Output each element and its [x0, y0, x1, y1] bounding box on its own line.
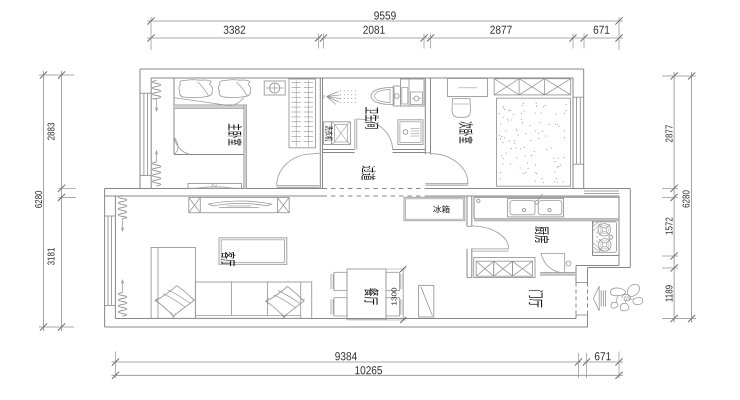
svg-text:10265: 10265 — [354, 365, 382, 378]
svg-text:3181: 3181 — [45, 248, 56, 266]
svg-text:门厅: 门厅 — [527, 289, 545, 308]
svg-text:厨房: 厨房 — [533, 226, 551, 243]
svg-text:9384: 9384 — [335, 351, 357, 364]
svg-text:6280: 6280 — [680, 190, 691, 208]
svg-text:卫生间: 卫生间 — [363, 107, 381, 129]
svg-text:2877: 2877 — [490, 24, 512, 37]
svg-text:1300: 1300 — [390, 287, 399, 306]
svg-text:次卧室: 次卧室 — [457, 121, 475, 144]
svg-text:1189: 1189 — [664, 285, 675, 302]
svg-text:1572: 1572 — [664, 217, 675, 235]
svg-text:671: 671 — [593, 24, 610, 37]
svg-text:客厅: 客厅 — [219, 252, 237, 267]
svg-text:餐厅: 餐厅 — [362, 288, 380, 305]
svg-text:6280: 6280 — [33, 191, 44, 209]
svg-text:9559: 9559 — [374, 10, 396, 23]
svg-text:2883: 2883 — [45, 123, 56, 141]
svg-text:冰箱: 冰箱 — [433, 203, 451, 214]
svg-text:主卧室: 主卧室 — [226, 123, 244, 146]
svg-text:2081: 2081 — [363, 24, 385, 37]
svg-text:2877: 2877 — [664, 125, 675, 143]
svg-text:洗衣机: 洗衣机 — [324, 125, 335, 141]
svg-text:T.V.: T.V. — [212, 183, 218, 188]
svg-text:3382: 3382 — [223, 24, 245, 37]
svg-text:671: 671 — [594, 351, 611, 364]
svg-text:过道: 过道 — [359, 166, 377, 181]
